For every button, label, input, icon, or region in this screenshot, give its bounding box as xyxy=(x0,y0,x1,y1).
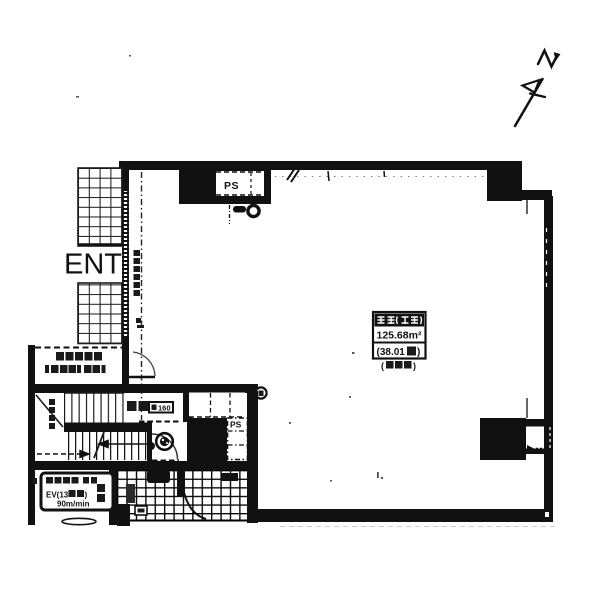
svg-text:160: 160 xyxy=(158,404,171,413)
svg-text:ENT: ENT xyxy=(64,249,122,281)
svg-text:(: ( xyxy=(381,361,384,371)
svg-text:PS: PS xyxy=(224,180,239,192)
svg-text:PS: PS xyxy=(230,420,242,430)
svg-text:90m/min: 90m/min xyxy=(57,500,90,509)
svg-text:): ) xyxy=(413,361,416,371)
svg-text:): ) xyxy=(85,491,88,500)
svg-text:125.68m²: 125.68m² xyxy=(377,330,422,342)
svg-text:(38.01: (38.01 xyxy=(377,347,406,358)
svg-text:): ) xyxy=(417,347,420,358)
svg-text:EV(13: EV(13 xyxy=(46,491,69,500)
